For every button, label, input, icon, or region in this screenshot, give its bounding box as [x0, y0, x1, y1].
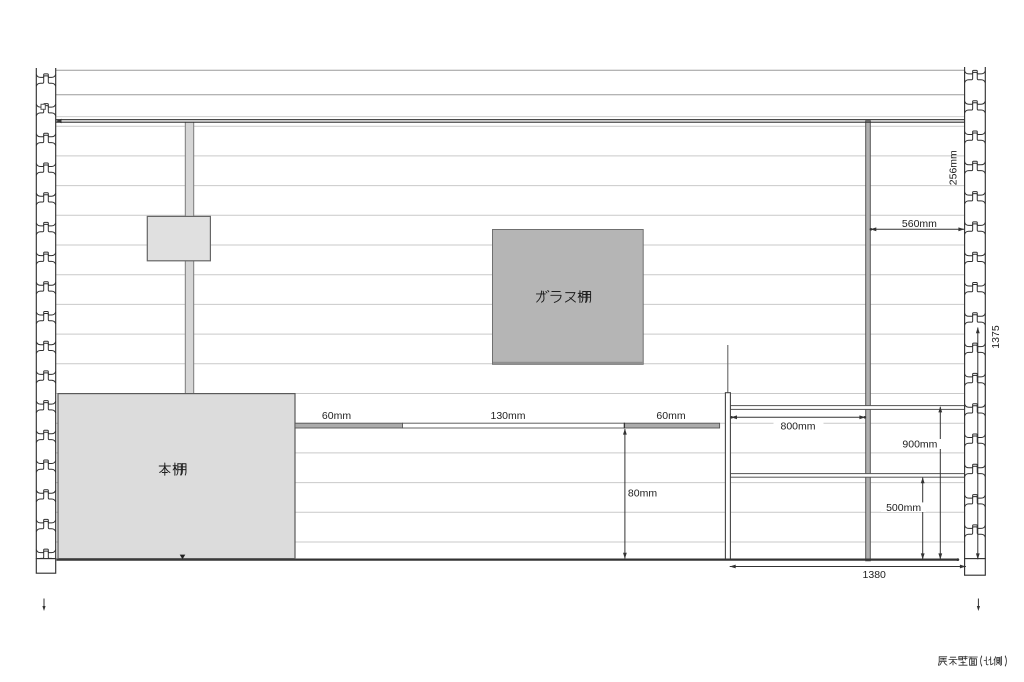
svg-text:560mm: 560mm	[902, 218, 937, 230]
svg-text:60mm: 60mm	[656, 410, 685, 422]
svg-text:500mm: 500mm	[886, 502, 921, 514]
svg-text:60mm: 60mm	[322, 410, 351, 422]
svg-text:800mm: 800mm	[780, 421, 815, 433]
svg-text:80mm: 80mm	[628, 488, 657, 500]
svg-text:130mm: 130mm	[490, 410, 525, 422]
svg-text:900mm: 900mm	[902, 439, 937, 451]
svg-text:1375: 1375	[990, 325, 1002, 349]
svg-text:256mm: 256mm	[948, 150, 960, 185]
svg-text:1380: 1380	[863, 569, 887, 581]
